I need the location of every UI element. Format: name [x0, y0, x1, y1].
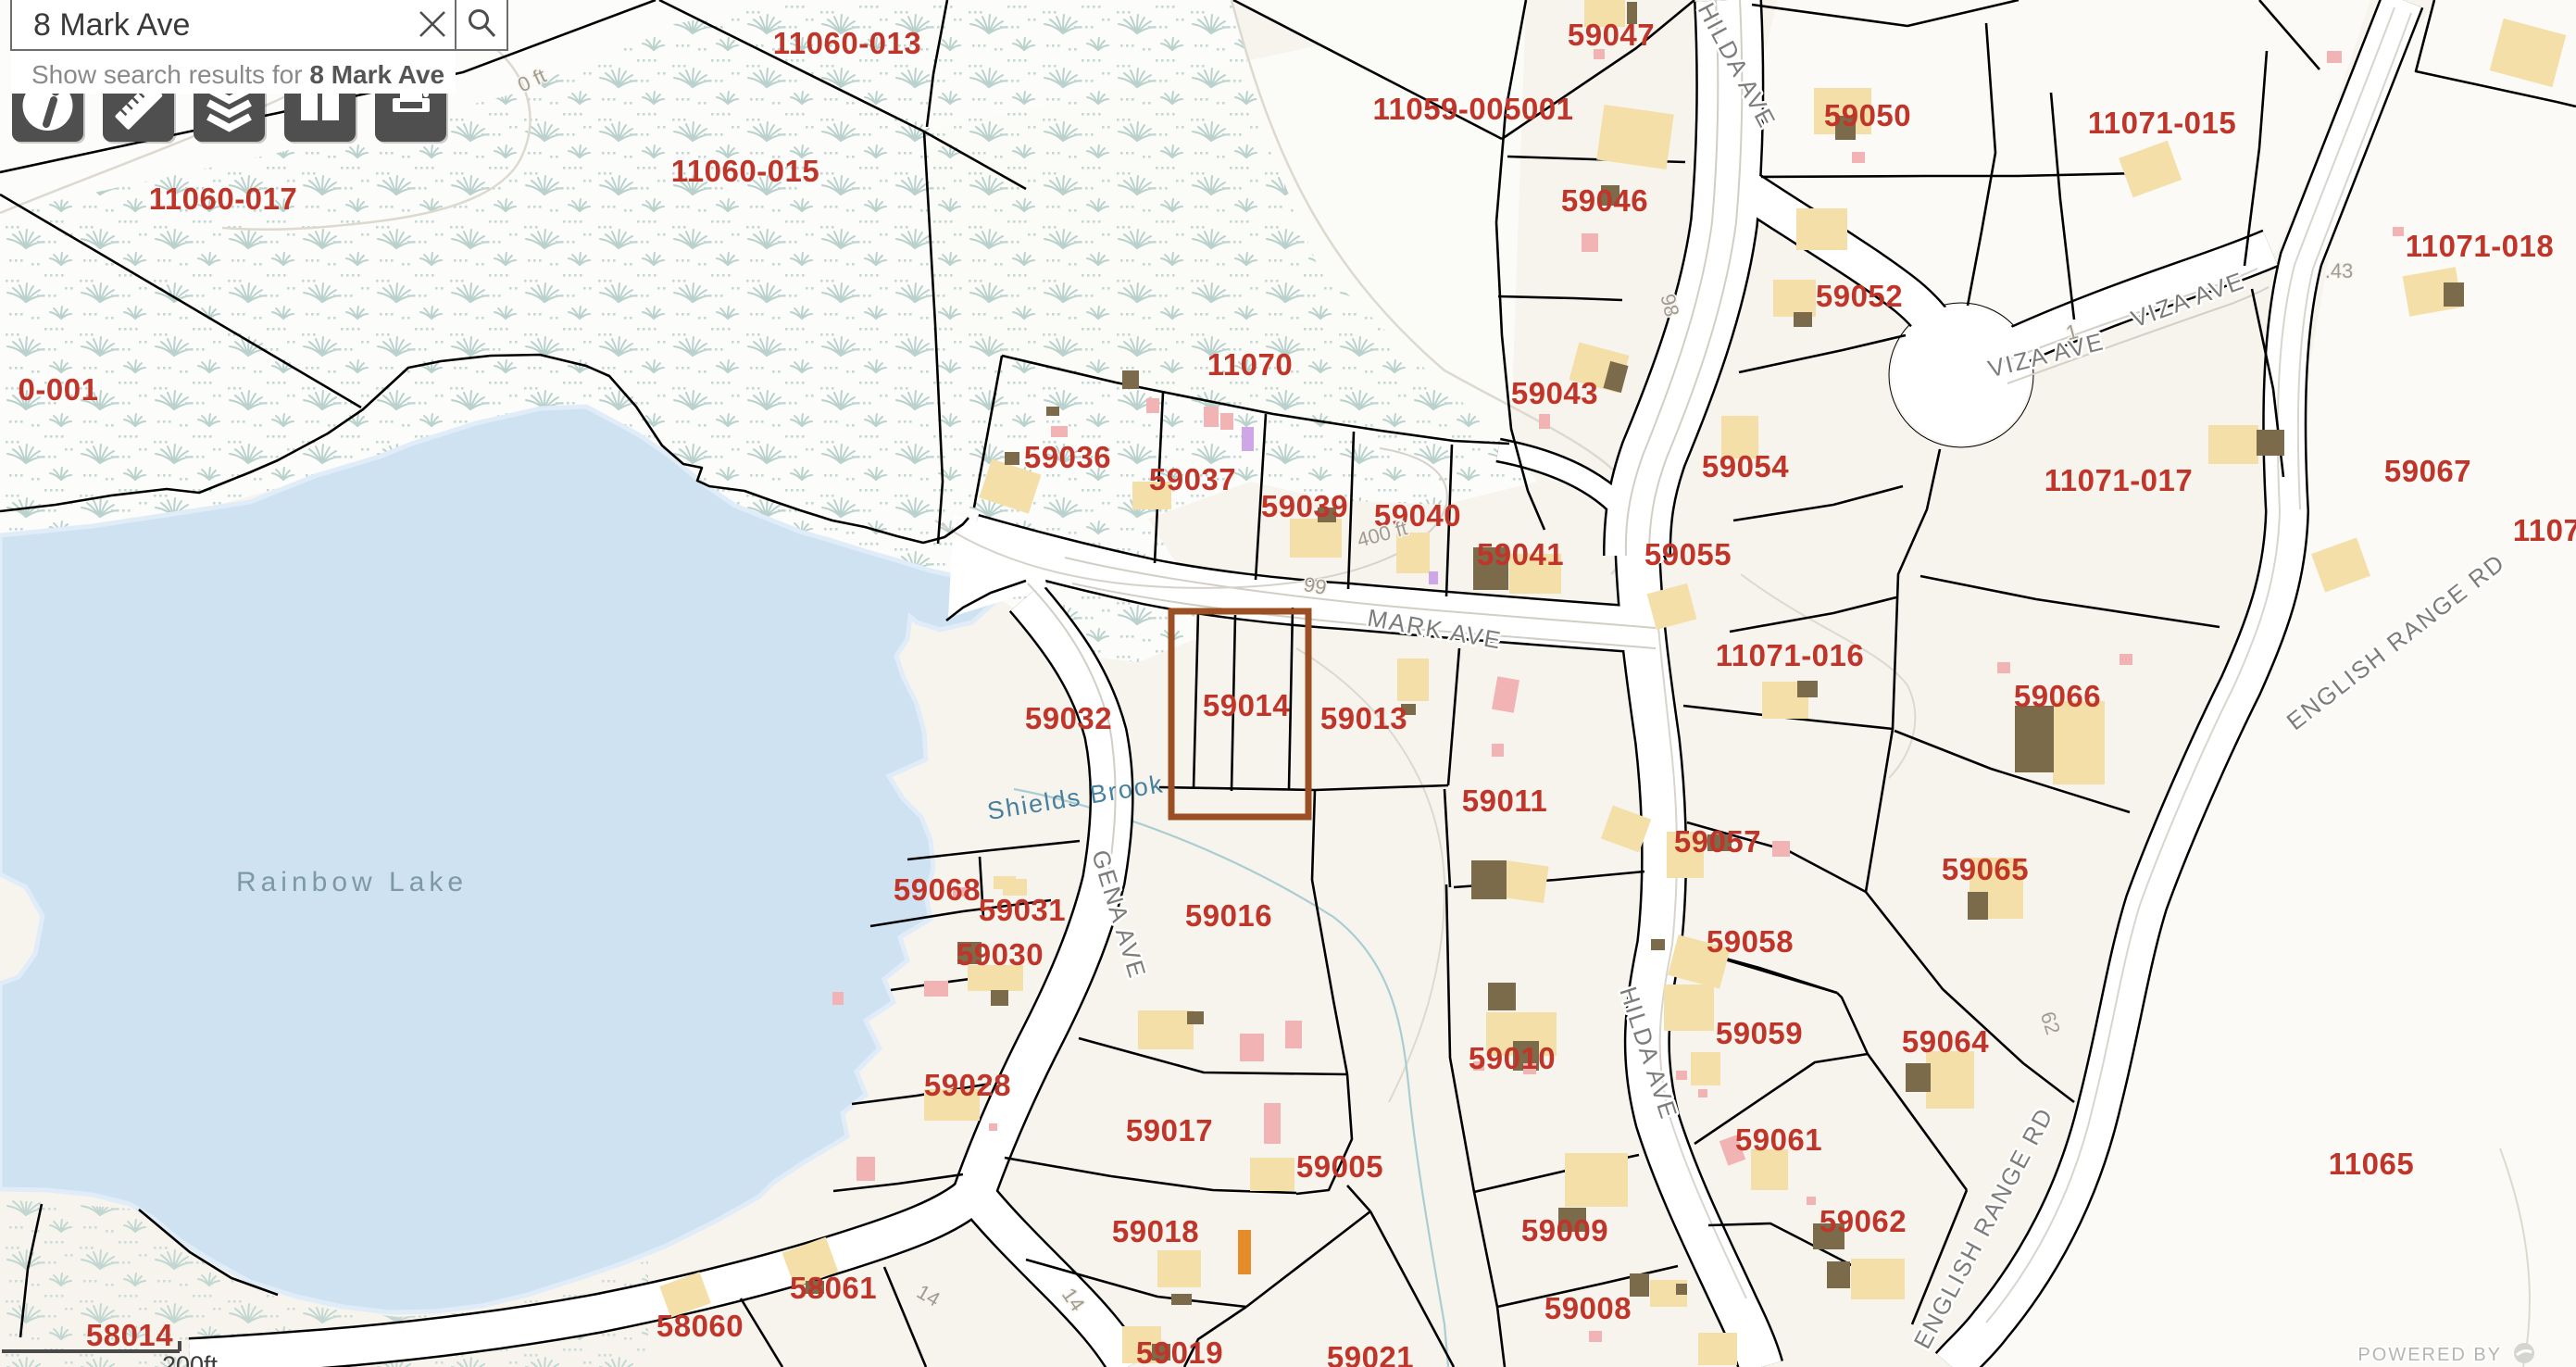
svg-text:59059: 59059 — [1716, 1016, 1803, 1050]
svg-text:58060: 58060 — [657, 1309, 744, 1343]
svg-text:58014: 58014 — [86, 1318, 173, 1352]
svg-text:59016: 59016 — [1185, 898, 1272, 933]
svg-text:Show search results for 8 Mark: Show search results for 8 Mark Ave — [31, 60, 444, 89]
svg-text:59050: 59050 — [1824, 98, 1911, 132]
svg-text:59068: 59068 — [894, 872, 981, 907]
svg-text:59067: 59067 — [2384, 454, 2471, 488]
svg-text:99: 99 — [1302, 572, 1328, 599]
svg-text:59062: 59062 — [1819, 1204, 1907, 1238]
svg-text:59018: 59018 — [1112, 1214, 1199, 1248]
svg-text:58061: 58061 — [790, 1271, 877, 1305]
svg-text:8 Mark Ave: 8 Mark Ave — [33, 7, 190, 43]
svg-text:59030: 59030 — [957, 937, 1044, 972]
svg-text:59058: 59058 — [1707, 924, 1794, 959]
svg-text:59039: 59039 — [1261, 489, 1348, 523]
svg-text:59017: 59017 — [1126, 1113, 1213, 1148]
svg-text:59013: 59013 — [1320, 701, 1407, 735]
svg-text:59008: 59008 — [1544, 1291, 1632, 1325]
svg-text:11071-015: 11071-015 — [2088, 106, 2237, 140]
svg-text:0-001: 0-001 — [19, 372, 99, 407]
svg-text:Rainbow Lake: Rainbow Lake — [236, 867, 468, 897]
svg-text:59043: 59043 — [1511, 376, 1598, 410]
svg-text:59021: 59021 — [1327, 1340, 1414, 1367]
svg-text:59028: 59028 — [924, 1068, 1011, 1102]
svg-text:11071-016: 11071-016 — [1716, 638, 1865, 672]
svg-text:59057: 59057 — [1674, 824, 1761, 859]
svg-text:59009: 59009 — [1521, 1213, 1608, 1248]
svg-text:59047: 59047 — [1568, 18, 1655, 52]
svg-text:59014: 59014 — [1203, 688, 1290, 722]
svg-text:POWERED BY: POWERED BY — [2357, 1345, 2502, 1365]
svg-text:59032: 59032 — [1025, 701, 1112, 735]
svg-text:59019: 59019 — [1136, 1336, 1223, 1367]
svg-text:59031: 59031 — [979, 893, 1066, 927]
svg-text:59054: 59054 — [1702, 449, 1789, 483]
svg-text:59011: 59011 — [1462, 784, 1547, 818]
svg-text:11070: 11070 — [1207, 347, 1293, 382]
svg-text:59052: 59052 — [1816, 279, 1903, 313]
svg-text:11071-018: 11071-018 — [2406, 229, 2555, 263]
svg-text:59037: 59037 — [1149, 462, 1236, 496]
svg-text:59064: 59064 — [1902, 1024, 1989, 1059]
svg-text:11072: 11072 — [2513, 513, 2576, 547]
svg-text:11065: 11065 — [2329, 1147, 2414, 1181]
svg-text:59036: 59036 — [1024, 440, 1111, 474]
svg-text:59065: 59065 — [1942, 852, 2029, 886]
svg-text:11059-005001: 11059-005001 — [1372, 92, 1573, 126]
svg-text:11060-015: 11060-015 — [671, 154, 820, 188]
svg-text:59041: 59041 — [1477, 537, 1564, 571]
svg-text:.43: .43 — [2325, 259, 2354, 282]
svg-text:11060-017: 11060-017 — [149, 182, 298, 216]
svg-text:11060-013: 11060-013 — [773, 26, 922, 60]
svg-text:59055: 59055 — [1644, 537, 1732, 571]
svg-text:59046: 59046 — [1561, 183, 1648, 218]
svg-text:59005: 59005 — [1296, 1149, 1383, 1184]
svg-text:11071-017: 11071-017 — [2045, 463, 2194, 497]
svg-text:59061: 59061 — [1735, 1122, 1822, 1157]
svg-text:59066: 59066 — [2014, 679, 2101, 713]
svg-text:200ft: 200ft — [162, 1351, 219, 1367]
svg-text:59010: 59010 — [1469, 1041, 1556, 1075]
